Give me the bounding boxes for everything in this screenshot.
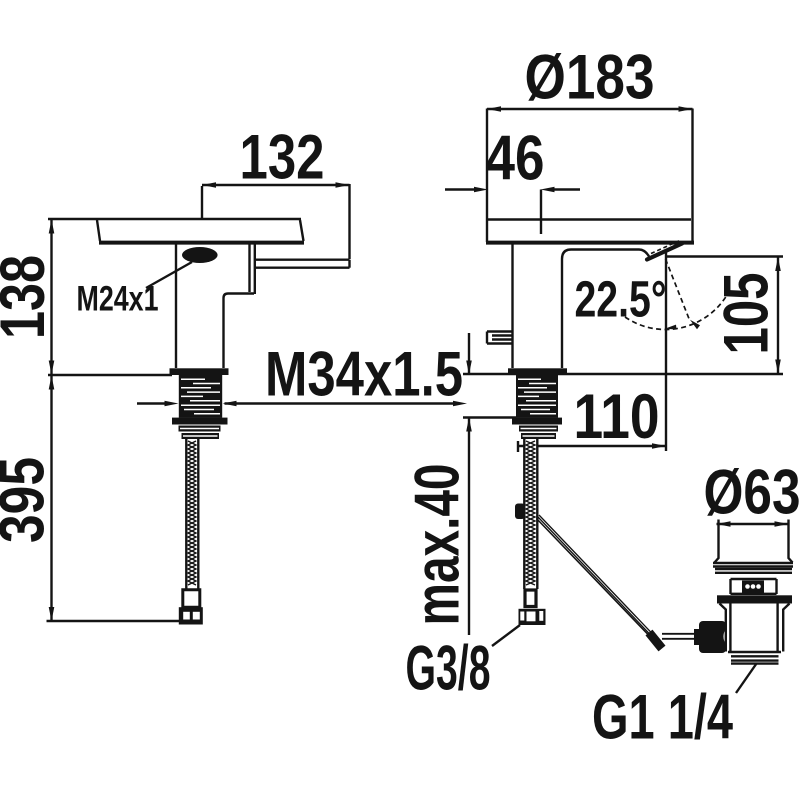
svg-text:132: 132 — [240, 123, 325, 193]
svg-text:max.40: max.40 — [403, 464, 473, 626]
svg-text:395: 395 — [0, 457, 58, 543]
svg-text:Ø183: Ø183 — [525, 43, 655, 113]
svg-text:M34x1.5: M34x1.5 — [265, 340, 463, 410]
svg-text:G1 1/4: G1 1/4 — [592, 683, 733, 753]
svg-text:46: 46 — [486, 124, 545, 194]
svg-text:138: 138 — [0, 255, 58, 339]
svg-text:22.5°: 22.5° — [575, 271, 667, 328]
svg-text:105: 105 — [712, 273, 782, 355]
svg-text:G3/8: G3/8 — [406, 634, 491, 704]
svg-text:Ø63: Ø63 — [704, 458, 800, 528]
svg-text:110: 110 — [574, 382, 660, 452]
svg-text:M24x1: M24x1 — [77, 280, 159, 319]
